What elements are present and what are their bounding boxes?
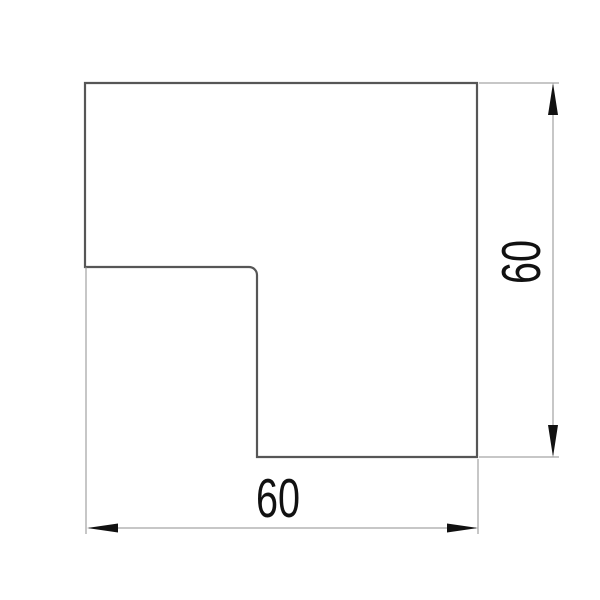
technical-drawing-canvas: 60 60: [0, 0, 600, 600]
l-shape-outline: [85, 83, 477, 457]
dim-arrow-up-icon: [548, 83, 558, 115]
dim-arrow-left-icon: [87, 524, 118, 533]
horizontal-dimension-label: 60: [256, 469, 300, 530]
vertical-dimension-label: 60: [492, 240, 553, 284]
dimension-drawing: 60 60: [0, 0, 600, 600]
dim-arrow-right-icon: [447, 524, 478, 533]
dim-arrow-down-icon: [548, 425, 558, 457]
